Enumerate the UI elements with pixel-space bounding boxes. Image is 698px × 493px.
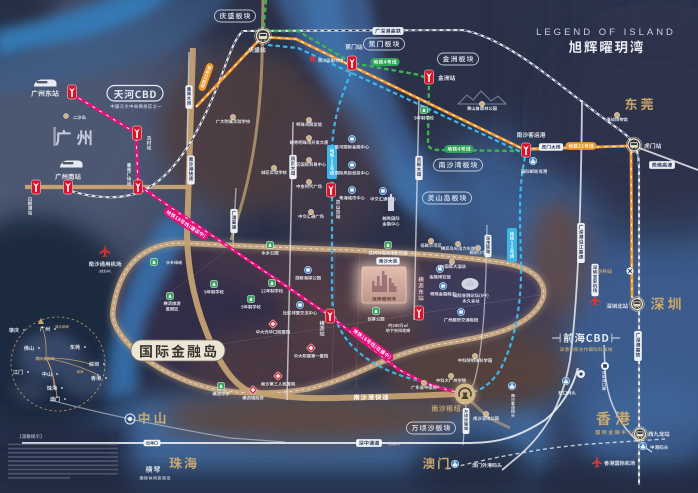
svg-text:LEGEND OF ISLAND: LEGEND OF ISLAND [536,27,676,38]
